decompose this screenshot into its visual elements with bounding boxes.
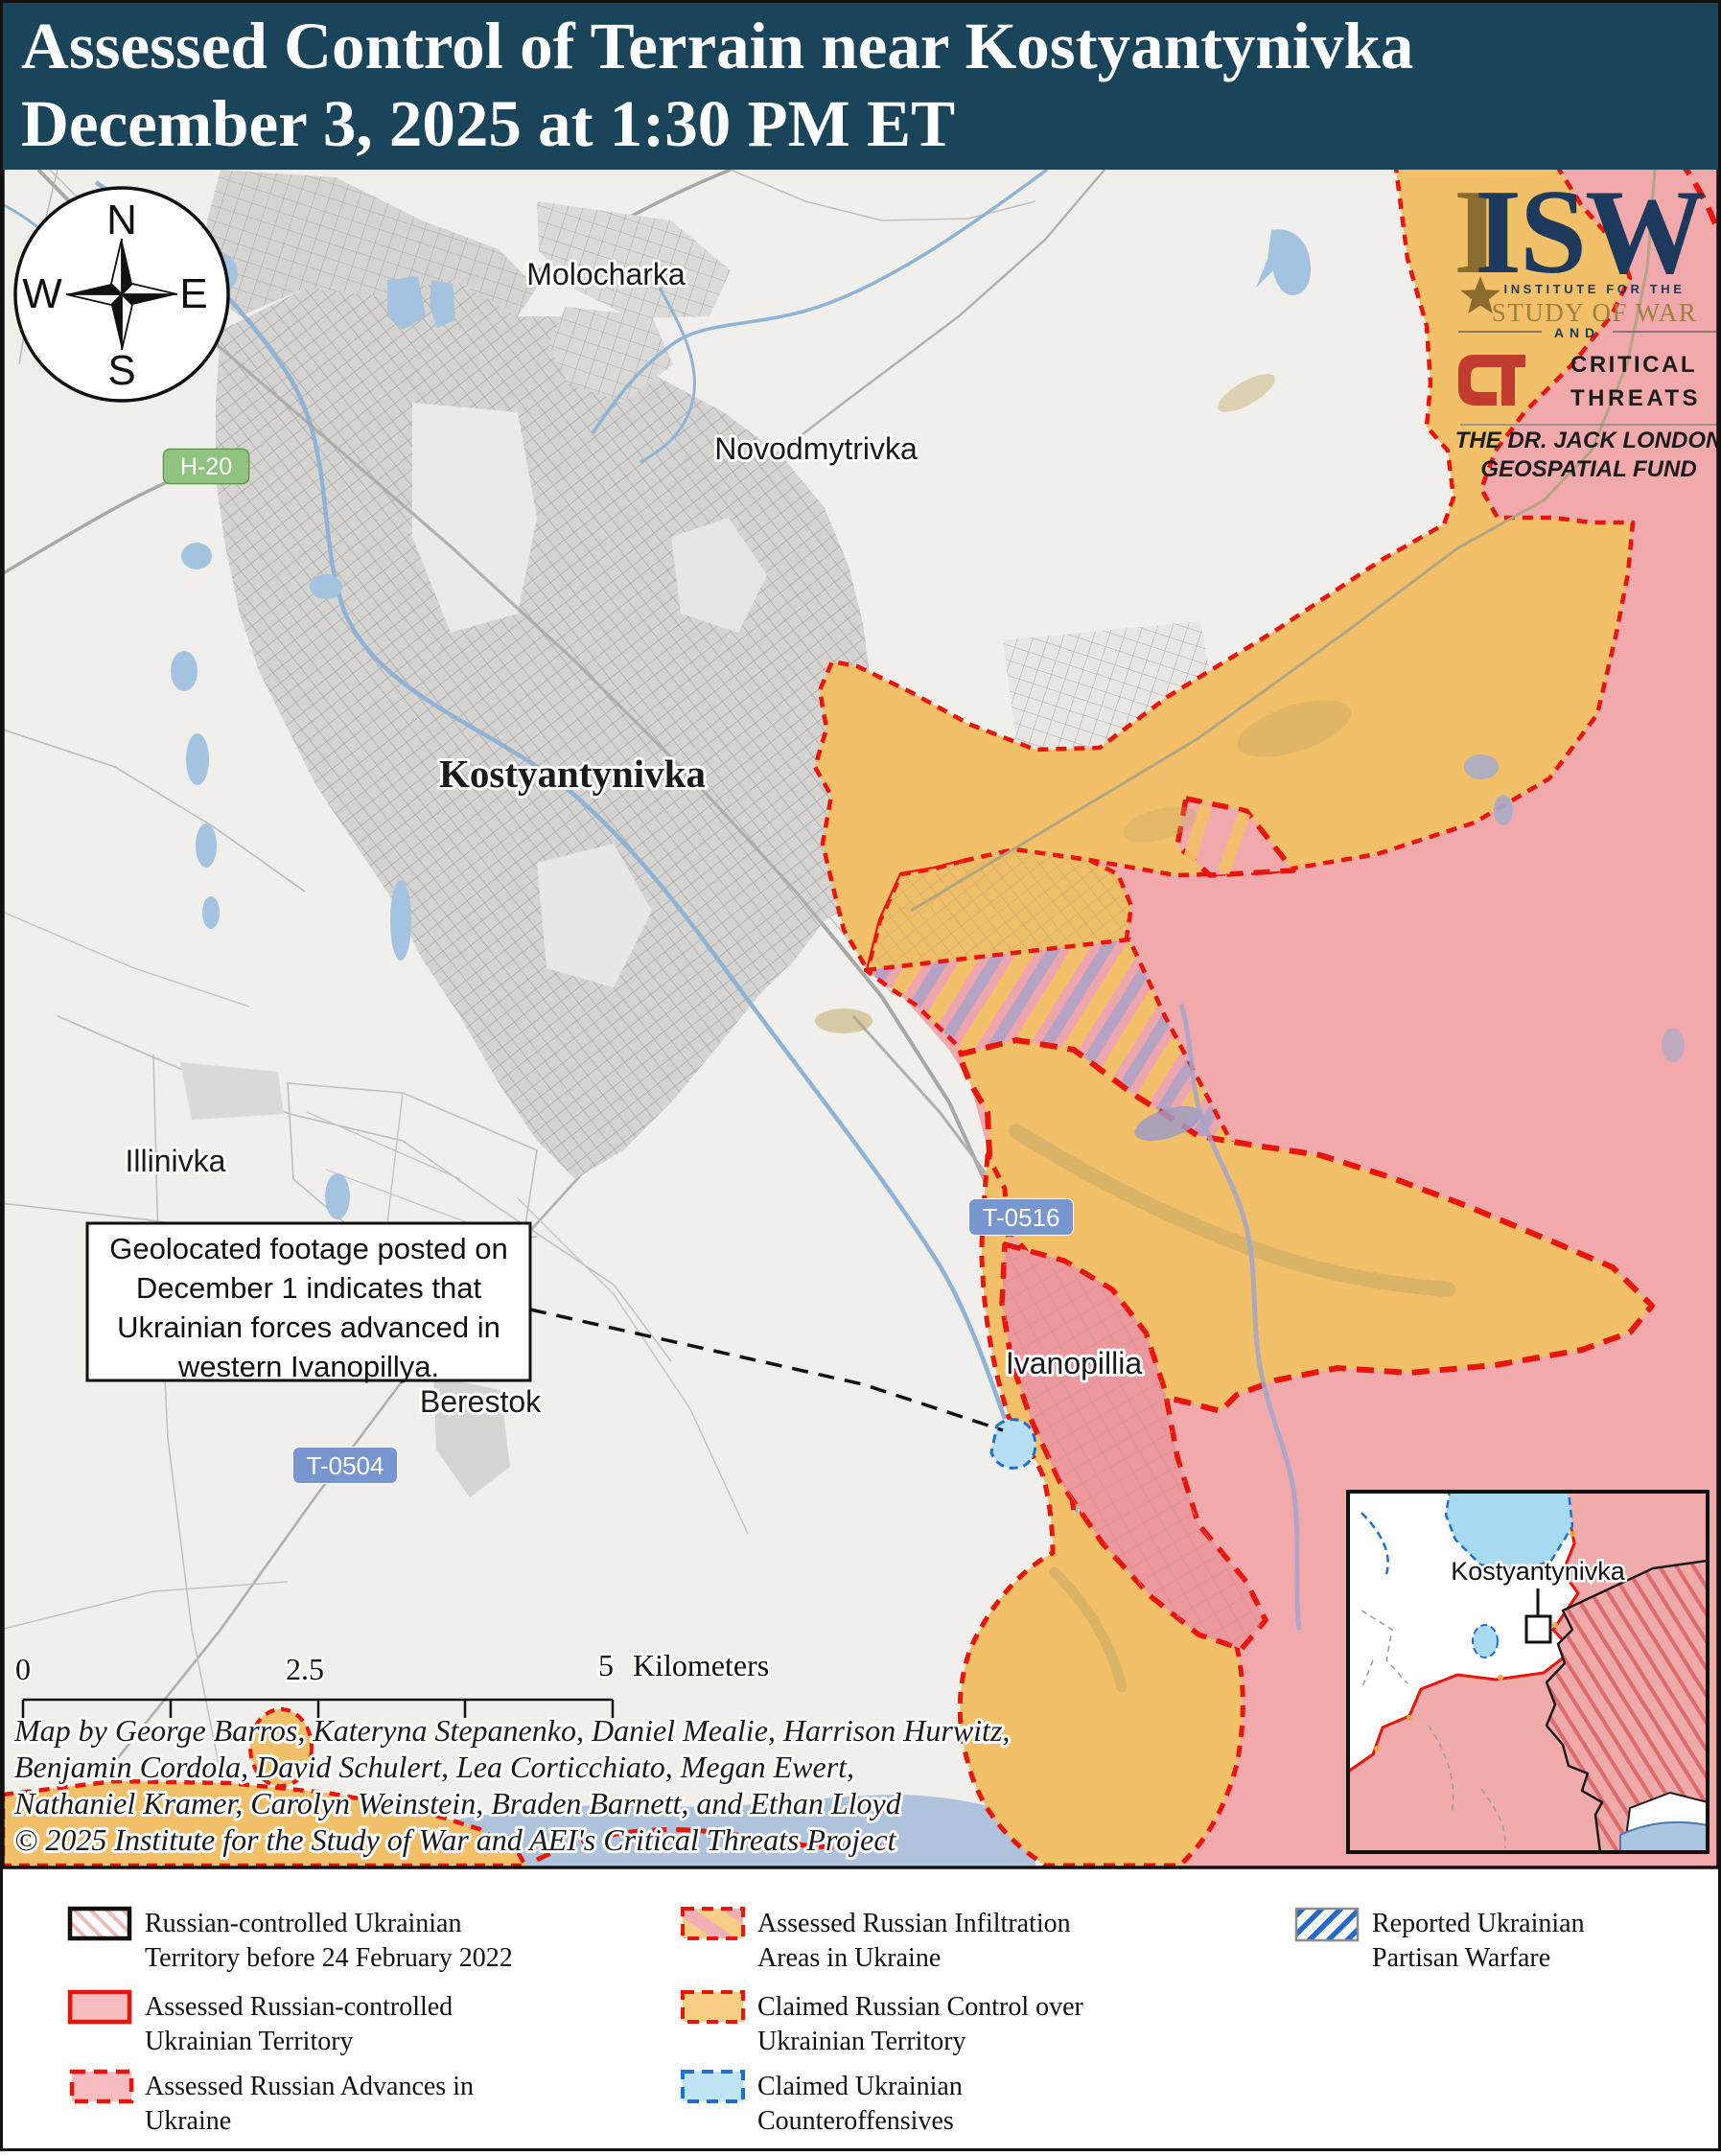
svg-text:ISW: ISW — [1475, 166, 1705, 299]
svg-text:Geolocated footage posted on: Geolocated footage posted on — [109, 1232, 507, 1265]
svg-text:Territory before 24 February 2: Territory before 24 February 2022 — [145, 1943, 513, 1973]
svg-text:AND: AND — [1554, 325, 1600, 340]
svg-text:Ivanopillia: Ivanopillia — [1006, 1346, 1143, 1380]
svg-text:GEOSPATIAL FUND: GEOSPATIAL FUND — [1480, 456, 1696, 482]
svg-text:December 1 indicates that: December 1 indicates that — [136, 1271, 482, 1305]
svg-text:Assessed Russian Advances in: Assessed Russian Advances in — [145, 2072, 474, 2101]
svg-text:Assessed Control of Terrain ne: Assessed Control of Terrain near Kostyan… — [21, 10, 1413, 82]
svg-text:STUDY OF WAR: STUDY OF WAR — [1492, 298, 1698, 327]
svg-text:western Ivanopillya.: western Ivanopillya. — [177, 1350, 439, 1383]
svg-text:E: E — [179, 270, 207, 317]
svg-text:INSTITUTE FOR THE: INSTITUTE FOR THE — [1503, 282, 1685, 296]
svg-text:Ukrainian Territory: Ukrainian Territory — [757, 2027, 966, 2056]
svg-text:Counteroffensives: Counteroffensives — [757, 2106, 954, 2136]
svg-text:Kilometers: Kilometers — [633, 1648, 769, 1682]
svg-text:S: S — [107, 347, 135, 394]
svg-text:H-20: H-20 — [180, 453, 232, 480]
svg-text:Benjamin Cordola, David Schule: Benjamin Cordola, David Schulert, Lea Co… — [14, 1750, 854, 1784]
svg-text:Areas in Ukraine: Areas in Ukraine — [757, 1943, 941, 1973]
svg-text:W: W — [22, 270, 62, 317]
svg-text:Partisan Warfare: Partisan Warfare — [1372, 1943, 1550, 1973]
svg-text:Kostyantynivka: Kostyantynivka — [1451, 1557, 1626, 1586]
svg-text:December 3, 2025 at 1:30 PM ET: December 3, 2025 at 1:30 PM ET — [21, 87, 955, 160]
svg-text:THREATS: THREATS — [1570, 385, 1701, 411]
svg-text:Illinivka: Illinivka — [126, 1144, 226, 1178]
svg-text:T-0504: T-0504 — [307, 1451, 384, 1480]
svg-text:Map by George Barros, Kateryna: Map by George Barros, Kateryna Stepanenk… — [13, 1713, 1010, 1748]
svg-text:2.5: 2.5 — [286, 1652, 324, 1686]
svg-text:Claimed Ukrainian: Claimed Ukrainian — [757, 2072, 963, 2101]
svg-text:Ukrainian forces advanced in: Ukrainian forces advanced in — [117, 1310, 500, 1344]
svg-text:Assessed Russian-controlled: Assessed Russian-controlled — [145, 1992, 453, 2022]
svg-text:N: N — [106, 197, 137, 243]
svg-text:Assessed Russian Infiltration: Assessed Russian Infiltration — [757, 1909, 1071, 1938]
svg-text:CRITICAL: CRITICAL — [1570, 352, 1697, 378]
svg-text:0: 0 — [15, 1652, 31, 1686]
svg-text:T-0516: T-0516 — [983, 1203, 1060, 1232]
svg-text:Novodmytrivka: Novodmytrivka — [714, 431, 918, 466]
svg-text:5: 5 — [598, 1648, 614, 1682]
svg-text:Reported Ukrainian: Reported Ukrainian — [1372, 1909, 1585, 1938]
svg-text:THE DR. JACK LONDON: THE DR. JACK LONDON — [1455, 428, 1721, 453]
svg-text:Russian-controlled Ukrainian: Russian-controlled Ukrainian — [145, 1909, 461, 1938]
svg-text:Molocharka: Molocharka — [526, 257, 686, 291]
svg-text:Kostyantynivka: Kostyantynivka — [439, 752, 706, 796]
svg-text:Nathaniel Kramer, Carolyn Wein: Nathaniel Kramer, Carolyn Weinstein, Bra… — [13, 1786, 902, 1820]
svg-text:Ukrainian Territory: Ukrainian Territory — [145, 2027, 354, 2056]
svg-text:© 2025 Institute for the Study: © 2025 Institute for the Study of War an… — [14, 1822, 897, 1857]
svg-text:Ukraine: Ukraine — [145, 2106, 231, 2136]
svg-text:Claimed Russian Control over: Claimed Russian Control over — [757, 1992, 1084, 2022]
svg-text:Berestok: Berestok — [420, 1384, 542, 1419]
